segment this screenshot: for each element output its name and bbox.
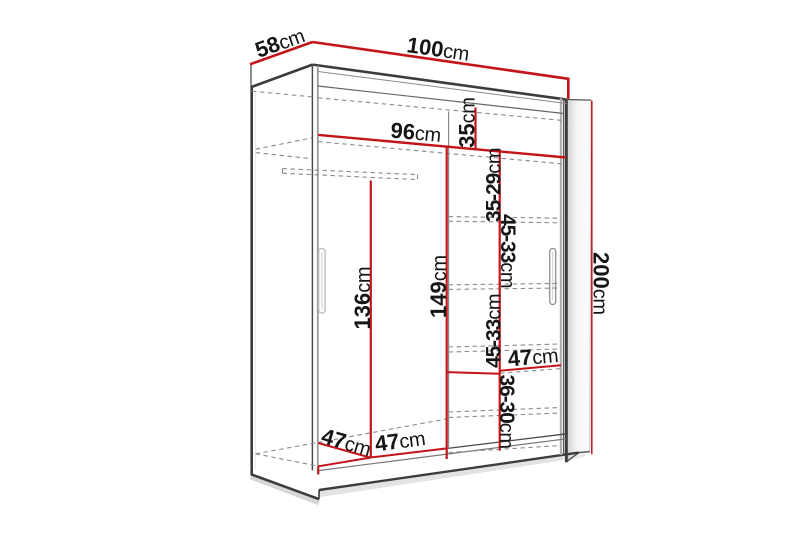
svg-text:100cm: 100cm <box>405 32 470 66</box>
svg-text:47cm: 47cm <box>319 423 374 461</box>
svg-text:58cm: 58cm <box>252 22 308 62</box>
svg-text:200cm: 200cm <box>588 252 613 315</box>
svg-text:136cm: 136cm <box>350 267 375 330</box>
svg-text:149cm: 149cm <box>426 255 451 318</box>
svg-text:35-29cm: 35-29cm <box>482 148 505 222</box>
svg-text:47cm: 47cm <box>507 342 559 372</box>
svg-text:36-30cm: 36-30cm <box>495 375 518 449</box>
svg-text:96cm: 96cm <box>390 118 442 147</box>
svg-text:45-33cm: 45-33cm <box>496 214 519 288</box>
svg-text:45-33cm: 45-33cm <box>482 294 505 368</box>
svg-text:35cm: 35cm <box>455 97 480 147</box>
